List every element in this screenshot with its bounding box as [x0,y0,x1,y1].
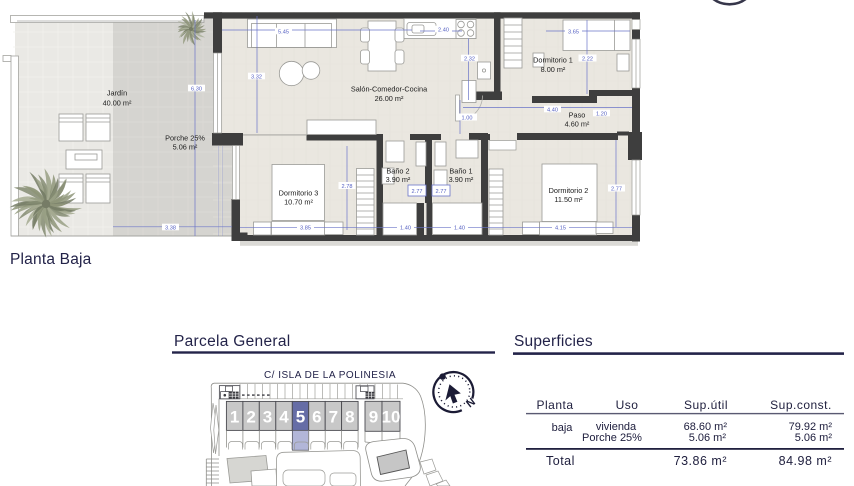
svg-text:40.00 m²: 40.00 m² [103,99,132,108]
svg-text:11.50 m²: 11.50 m² [554,195,583,204]
svg-text:3.85: 3.85 [300,226,311,232]
svg-text:3.38: 3.38 [165,225,176,231]
svg-text:5.45: 5.45 [278,29,289,35]
svg-text:C/ ISLA DE LA POLINESIA: C/ ISLA DE LA POLINESIA [264,370,396,381]
svg-text:3.65: 3.65 [568,29,579,35]
svg-text:N: N [464,396,478,410]
svg-text:2.77: 2.77 [412,189,423,195]
svg-text:1.40: 1.40 [400,226,411,232]
svg-text:5.06 m²: 5.06 m² [689,432,727,444]
svg-text:5.06 m²: 5.06 m² [795,432,833,444]
svg-text:3: 3 [263,408,272,427]
svg-text:Salón-Comedor-Cocina: Salón-Comedor-Cocina [351,85,428,94]
svg-text:Paso: Paso [569,111,586,120]
svg-text:4.60 m²: 4.60 m² [565,120,590,129]
svg-text:1.20: 1.20 [596,111,607,117]
svg-text:5: 5 [296,408,305,427]
svg-text:Dormitorio 2: Dormitorio 2 [549,186,589,195]
svg-text:4.15: 4.15 [555,226,566,232]
svg-text:8.00 m²: 8.00 m² [541,65,566,74]
svg-text:Porche 25%: Porche 25% [165,134,205,143]
svg-text:10.70 m²: 10.70 m² [284,198,313,207]
svg-text:84.98 m²: 84.98 m² [779,454,832,468]
svg-text:Dormitorio 3: Dormitorio 3 [279,189,319,198]
svg-text:Sup.const.: Sup.const. [770,398,832,412]
svg-text:Planta Baja: Planta Baja [10,251,92,268]
svg-text:4: 4 [279,408,289,427]
svg-text:7: 7 [329,408,338,427]
svg-text:2.40: 2.40 [438,27,449,33]
svg-text:baja: baja [552,422,574,434]
svg-text:5.06 m²: 5.06 m² [173,143,198,152]
svg-text:Total: Total [546,454,575,468]
svg-text:2.32: 2.32 [464,56,475,62]
svg-text:4.40: 4.40 [547,107,558,113]
svg-text:1.00: 1.00 [462,115,473,121]
svg-text:2.78: 2.78 [342,184,353,190]
svg-text:2.77: 2.77 [436,189,447,195]
svg-text:Uso: Uso [616,398,639,412]
svg-text:6: 6 [312,408,321,427]
svg-text:3.32: 3.32 [251,74,262,80]
svg-text:3.90 m²: 3.90 m² [386,175,411,184]
svg-text:Planta: Planta [536,398,573,412]
svg-text:Jardín: Jardín [107,89,127,98]
svg-text:73.86 m²: 73.86 m² [674,454,727,468]
svg-text:2.22: 2.22 [582,56,593,62]
svg-text:Superficies: Superficies [514,333,593,350]
svg-text:9: 9 [369,408,378,427]
svg-text:6.30: 6.30 [191,86,202,92]
svg-text:26.00 m²: 26.00 m² [375,94,404,103]
svg-text:2.77: 2.77 [611,186,622,192]
svg-text:Dormitorio 1: Dormitorio 1 [533,56,573,65]
svg-text:1: 1 [230,408,239,427]
svg-text:Porche 25%: Porche 25% [582,432,642,444]
svg-text:Sup.útil: Sup.útil [684,398,728,412]
svg-text:3.90 m²: 3.90 m² [449,175,474,184]
svg-text:Parcela General: Parcela General [174,333,291,350]
svg-text:1.40: 1.40 [454,226,465,232]
svg-text:10: 10 [382,408,401,427]
svg-text:8: 8 [345,408,354,427]
svg-text:2: 2 [246,408,255,427]
